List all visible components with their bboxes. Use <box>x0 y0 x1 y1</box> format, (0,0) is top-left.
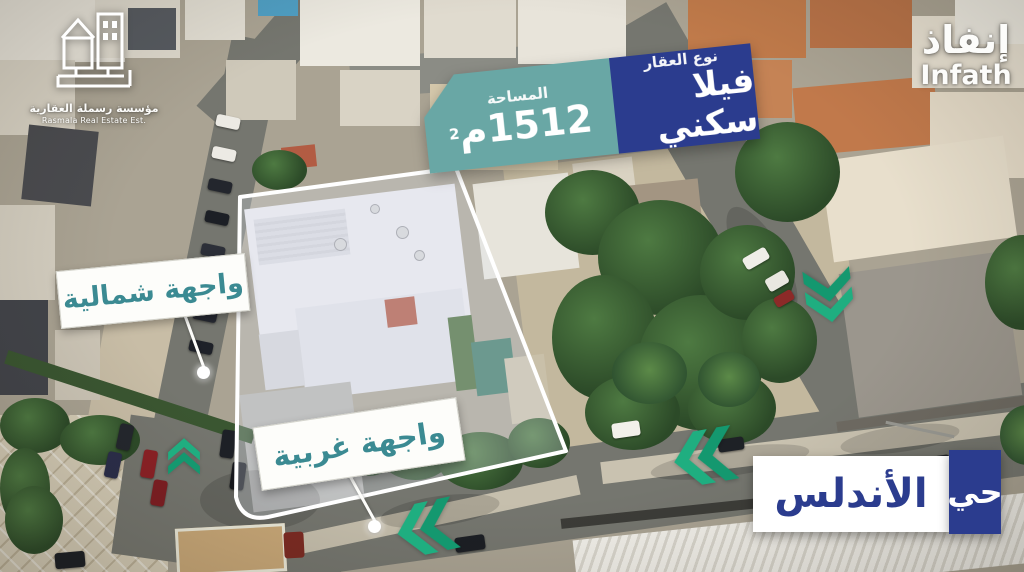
infath-logo: إنفاذ Infath <box>914 20 1018 90</box>
property-type-banner: نوع العقار فيلا سكني <box>609 43 760 153</box>
leader-dot <box>368 520 381 533</box>
direction-arrow-up-icon <box>164 435 204 477</box>
district-prefix-box: حي <box>949 450 1001 534</box>
area-banner: المساحة 1512م2 <box>420 58 619 173</box>
district-prefix-text: حي <box>947 473 1002 511</box>
district-name-text: الأندلس <box>774 471 927 517</box>
rasmala-name-english: Rasmala Real Estate Est. <box>16 116 172 125</box>
property-type-value: فيلا سكني <box>611 61 760 154</box>
rasmala-logo: مؤسسة رسملة العقارية Rasmala Real Estate… <box>16 4 172 125</box>
presentation-frame: واجهة شمالية واجهة غربية نوع العقار فيلا… <box>0 0 1024 572</box>
rasmala-buildings-icon <box>46 4 142 96</box>
area-value: 1512م2 <box>447 97 595 156</box>
infath-name-english: Infath <box>914 62 1018 90</box>
district-name-box: الأندلس <box>753 456 949 532</box>
west-facade-text: واجهة غربية <box>271 414 448 473</box>
direction-arrow-down-icon <box>799 262 858 330</box>
infath-name-arabic: إنفاذ <box>914 20 1018 62</box>
north-facade-text: واجهة شمالية <box>61 267 245 315</box>
rasmala-name-arabic: مؤسسة رسملة العقارية <box>16 102 172 115</box>
leader-dot <box>197 366 210 379</box>
